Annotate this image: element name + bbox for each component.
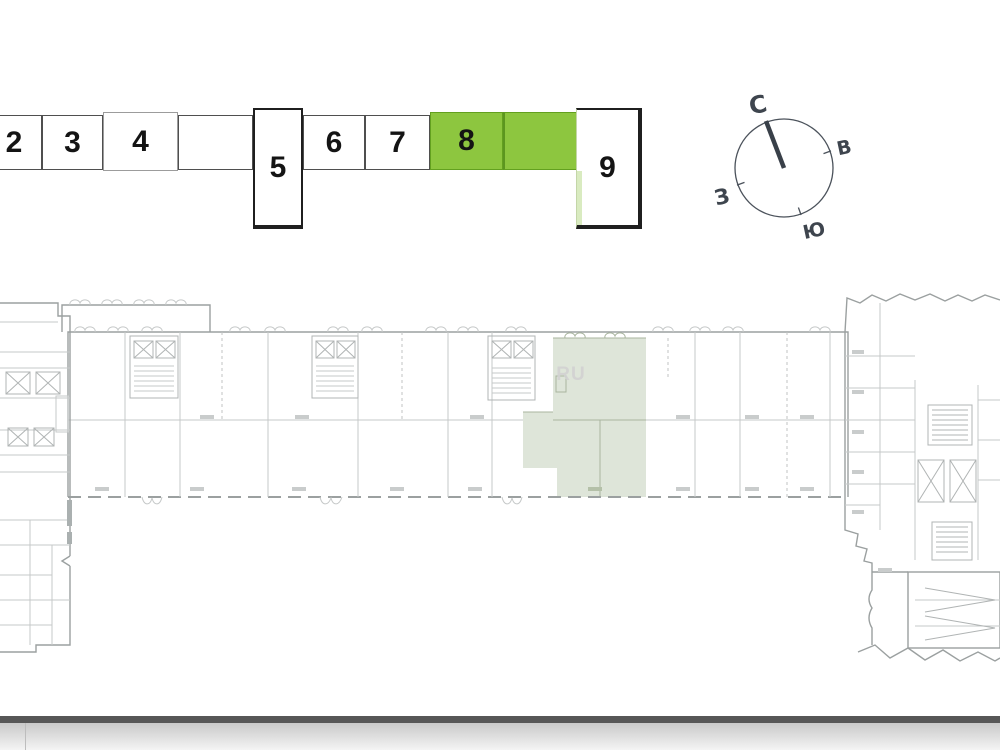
- section-box-unlabeled: [178, 115, 253, 170]
- floor-plan: RU: [0, 280, 1000, 720]
- door-thresholds: [95, 415, 814, 491]
- watermark-text: RU: [556, 364, 585, 385]
- section-box-4[interactable]: 4: [103, 112, 178, 171]
- left-tower: [0, 303, 72, 652]
- section-box-2[interactable]: 2: [0, 115, 42, 170]
- compass-east-label: В: [835, 136, 854, 161]
- section-box-5[interactable]: 5: [253, 108, 303, 229]
- section-box-7[interactable]: 7: [365, 115, 430, 170]
- compass-south-label: Ю: [801, 218, 827, 244]
- section-box-8-selected[interactable]: 8: [430, 112, 503, 170]
- section-box-6[interactable]: 6: [303, 115, 365, 170]
- unit-door-mark: [588, 487, 602, 491]
- footer-divider-line: [25, 723, 26, 750]
- compass: С В З Ю: [700, 80, 880, 250]
- section-box-9[interactable]: 9: [576, 108, 642, 229]
- compass-ticks: [737, 151, 831, 215]
- stair-core-3: [488, 336, 535, 400]
- selected-section-extension: [577, 171, 582, 225]
- section-box-selected-blank[interactable]: [503, 112, 577, 170]
- section-box-3[interactable]: 3: [42, 115, 103, 170]
- compass-needle-icon: [766, 121, 784, 168]
- compass-west-label: З: [712, 184, 732, 211]
- facade-bumps-green: [565, 333, 625, 338]
- left-porch: [56, 396, 68, 432]
- bottom-bar-shadow: [0, 723, 1000, 750]
- unit-dividers: [125, 332, 830, 497]
- right-tower: [845, 294, 1000, 661]
- highlighted-unit[interactable]: [523, 338, 646, 497]
- compass-north-label: С: [746, 89, 769, 120]
- stair-core-1: [130, 336, 178, 398]
- unit-dividers-dotted: [222, 332, 787, 497]
- band-outline: [68, 332, 848, 497]
- entrance-scallops: [142, 497, 522, 504]
- bottom-bar: [0, 716, 1000, 723]
- stair-core-2: [312, 336, 358, 398]
- page: 2 3 4 5 6 7 8 9 С В З Ю: [0, 0, 1000, 750]
